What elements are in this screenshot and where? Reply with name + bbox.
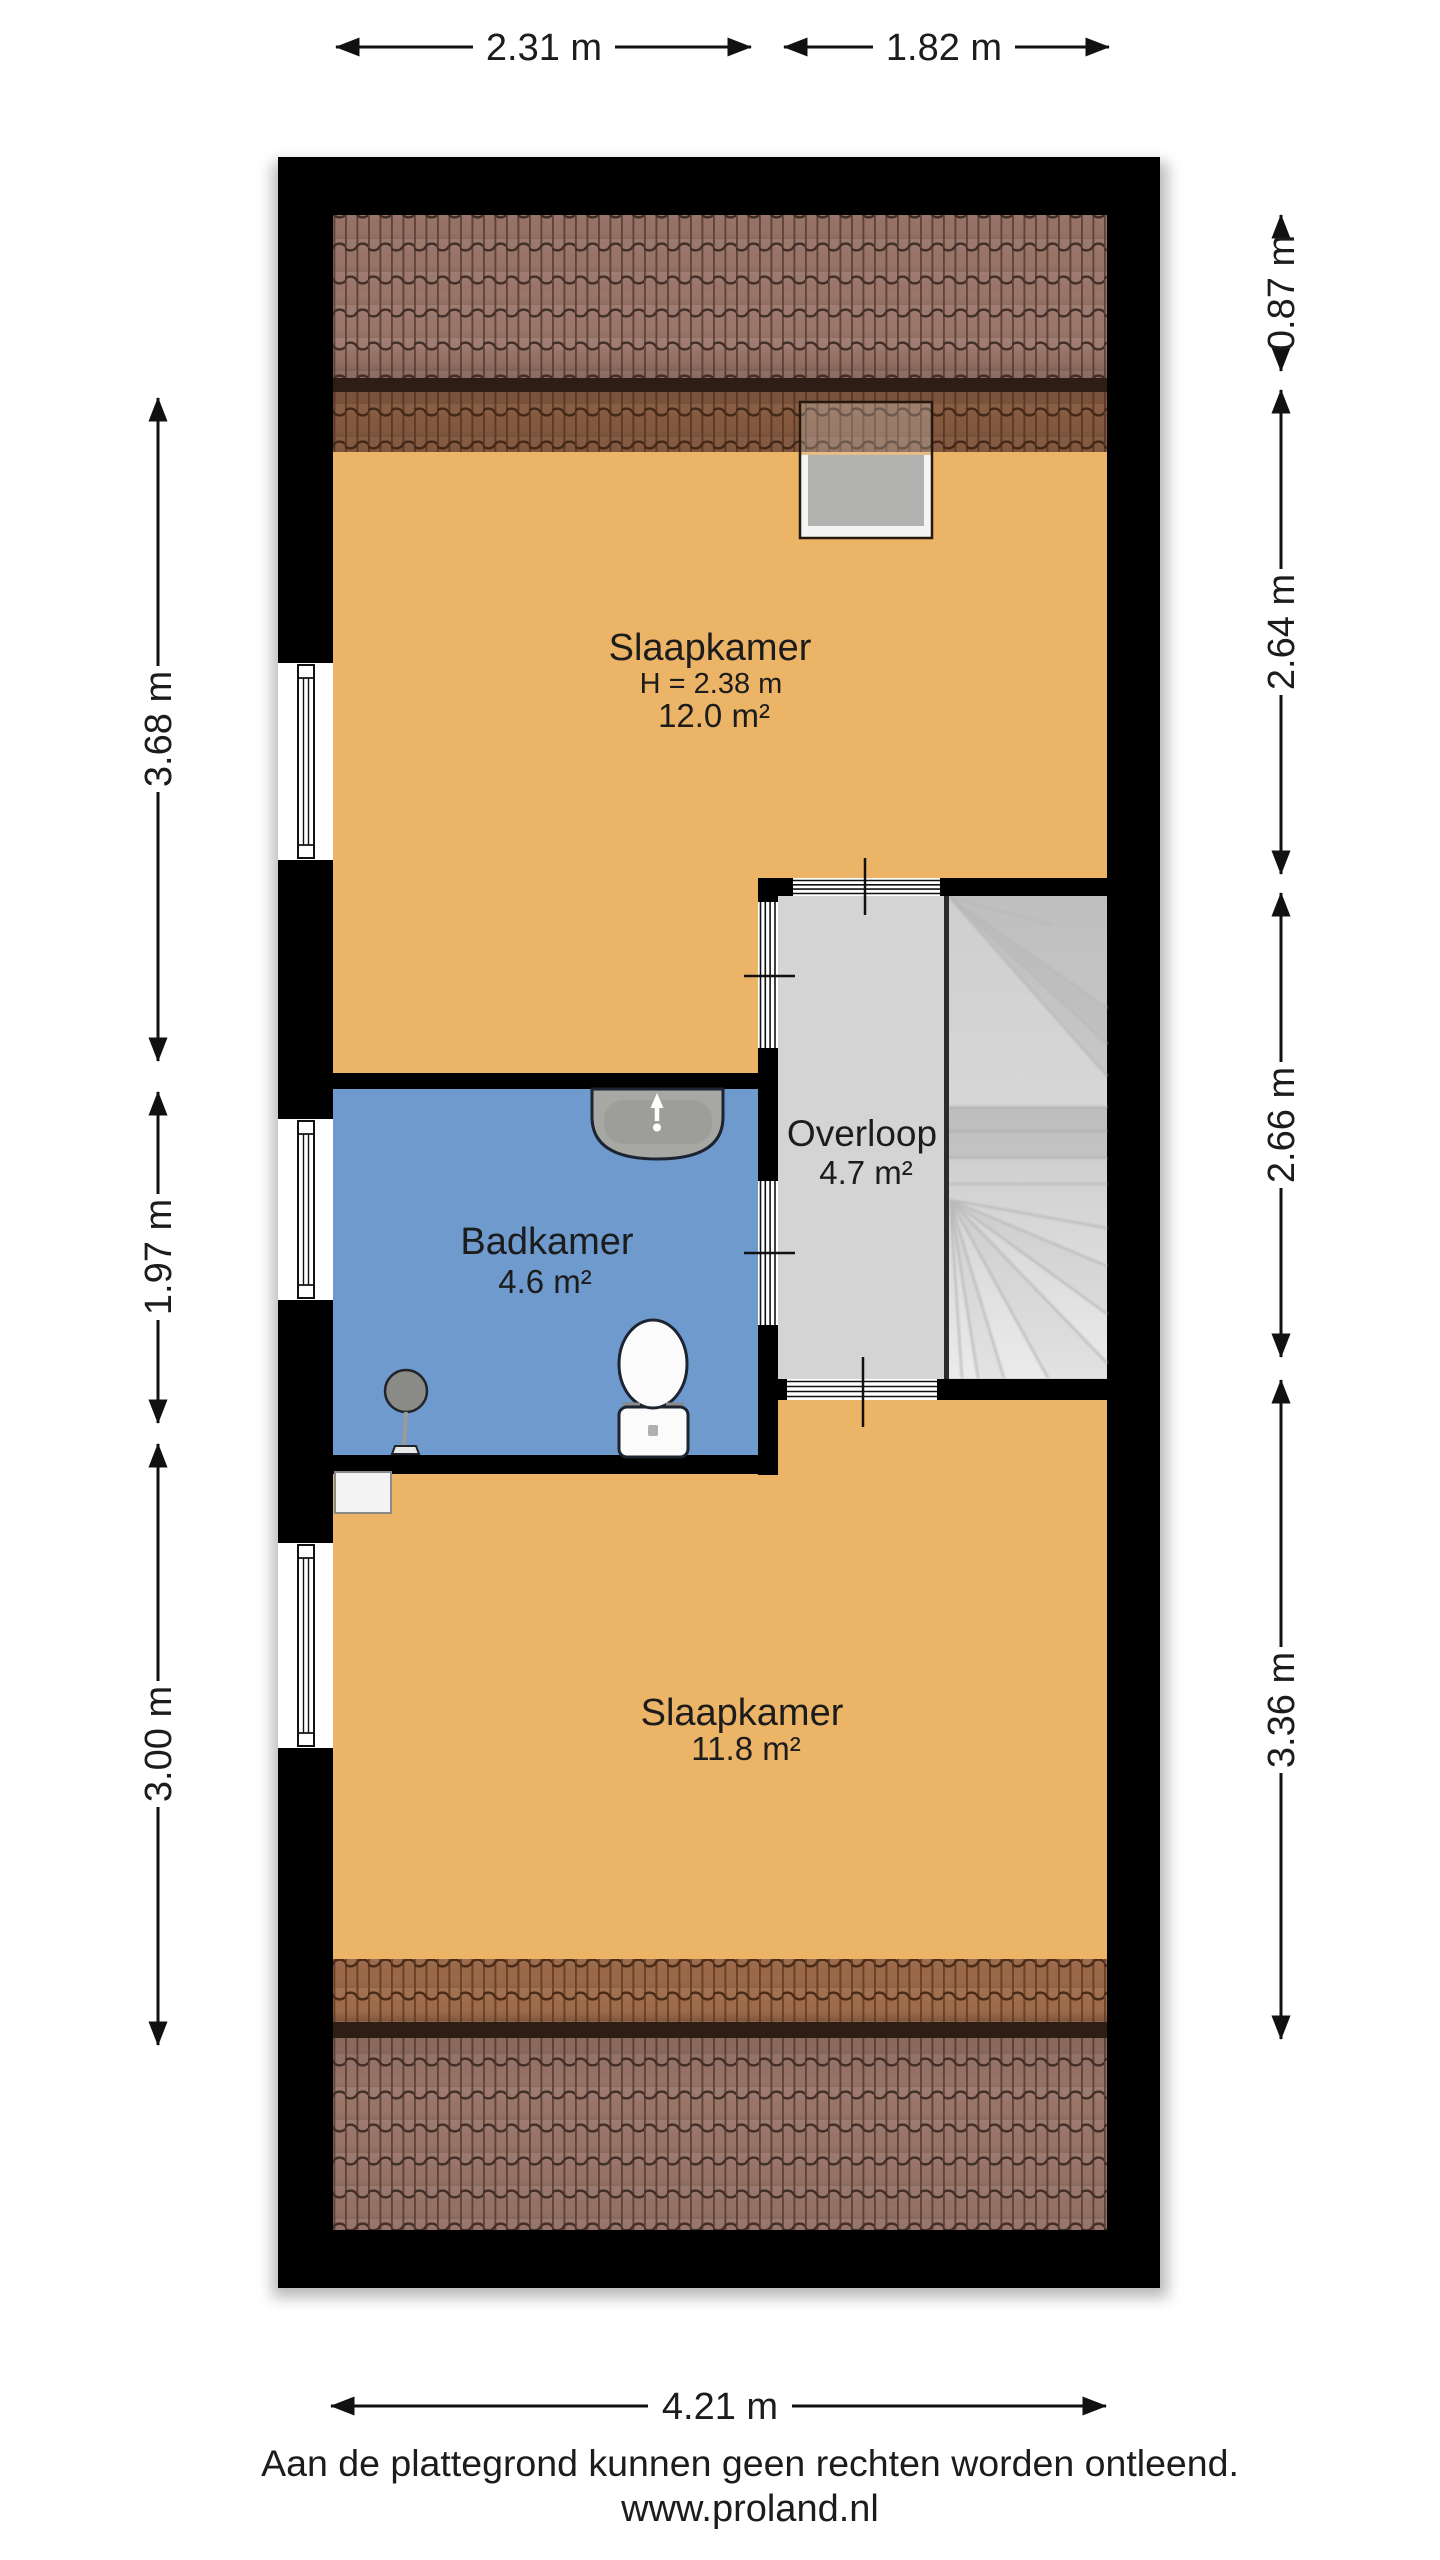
svg-text:2.66 m: 2.66 m [1261, 1067, 1303, 1183]
svg-text:1.82 m: 1.82 m [886, 27, 1002, 69]
svg-text:2.64 m: 2.64 m [1261, 574, 1303, 690]
svg-text:Badkamer: Badkamer [460, 1221, 634, 1263]
svg-text:Overloop: Overloop [787, 1113, 937, 1154]
svg-text:Aan de plattegrond kunnen geen: Aan de plattegrond kunnen geen rechten w… [261, 2442, 1239, 2484]
svg-text:Slaapkamer: Slaapkamer [609, 627, 812, 669]
svg-text:4.6 m²: 4.6 m² [498, 1263, 592, 1300]
svg-text:4.21 m: 4.21 m [662, 2386, 778, 2428]
svg-text:4.7 m²: 4.7 m² [819, 1154, 913, 1191]
svg-text:Slaapkamer: Slaapkamer [641, 1692, 844, 1734]
svg-text:3.36 m: 3.36 m [1261, 1652, 1303, 1768]
svg-text:0.87 m: 0.87 m [1261, 235, 1303, 351]
svg-text:H = 2.38 m: H = 2.38 m [640, 668, 783, 700]
svg-text:2.31 m: 2.31 m [486, 27, 602, 69]
svg-text:1.97 m: 1.97 m [138, 1199, 180, 1315]
svg-text:www.proland.nl: www.proland.nl [620, 2488, 879, 2530]
svg-text:3.00 m: 3.00 m [138, 1686, 180, 1802]
svg-text:3.68 m: 3.68 m [138, 671, 180, 787]
svg-text:11.8 m²: 11.8 m² [691, 1730, 800, 1767]
svg-text:12.0 m²: 12.0 m² [658, 697, 770, 734]
